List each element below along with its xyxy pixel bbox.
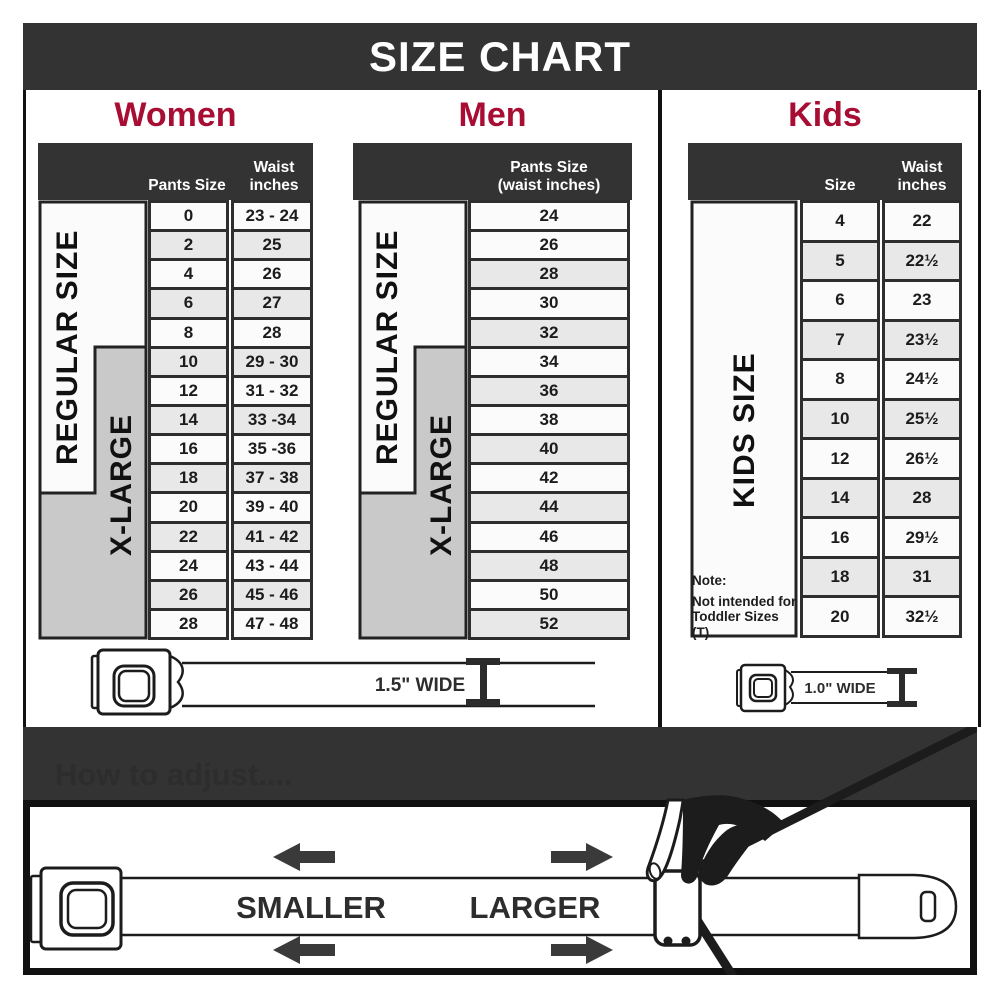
table-cell: 35 -36: [234, 433, 310, 462]
men-section-title: Men: [353, 94, 632, 136]
smaller-label: SMALLER: [236, 890, 386, 925]
size-chart-page: SIZE CHART Women Men Kids Pants Size Wai…: [0, 0, 1000, 1000]
table-cell: 24: [151, 550, 226, 579]
table-cell: 10: [803, 398, 877, 438]
kids-waist-header: Waist inches: [882, 159, 962, 194]
table-cell: 18: [151, 462, 226, 491]
table-cell: 26: [471, 229, 627, 258]
table-cell: 7: [803, 319, 877, 359]
table-cell: 39 - 40: [234, 491, 310, 520]
belt-adjuster-slider: [655, 871, 700, 946]
table-cell: 29½: [885, 516, 959, 556]
table-cell: 47 - 48: [234, 608, 310, 637]
table-cell: 50: [471, 579, 627, 608]
table-cell: 28: [471, 258, 627, 287]
table-cell: 31: [885, 556, 959, 596]
women-waist-header: Waist inches: [232, 159, 316, 194]
table-cell: 14: [151, 404, 226, 433]
note-title: Note:: [692, 573, 798, 589]
table-cell: 28: [151, 608, 226, 637]
width-marker-icon: [466, 658, 500, 706]
men-regular-size-label: REGULAR SIZE: [368, 202, 408, 492]
table-cell: 10: [151, 346, 226, 375]
table-cell: 20: [803, 595, 877, 635]
table-cell: 32: [471, 317, 627, 346]
table-cell: 4: [803, 203, 877, 240]
table-cell: 25: [234, 229, 310, 258]
women-pants-size-column: 0246810121416182022242628: [148, 200, 229, 640]
table-cell: 42: [471, 462, 627, 491]
table-cell: 37 - 38: [234, 462, 310, 491]
table-cell: 23 - 24: [234, 203, 310, 229]
table-cell: 43 - 44: [234, 550, 310, 579]
women-xlarge-label: X-LARGE: [102, 372, 142, 598]
how-to-adjust-section: How to adjust....: [23, 727, 977, 975]
men-table-header: Pants Size (waist inches): [353, 143, 632, 200]
table-cell: 12: [803, 437, 877, 477]
men-pants-size-column: 242628303234363840424446485052: [468, 200, 630, 640]
kids-size-header: Size: [800, 177, 880, 194]
table-cell: 44: [471, 491, 627, 520]
kids-waist-column: 2222½2323½24½25½26½2829½3132½: [882, 200, 962, 638]
note-line: Not intended for: [692, 594, 798, 610]
table-cell: 23½: [885, 319, 959, 359]
kids-note: Note: Not intended for Toddler Sizes (T): [692, 573, 798, 640]
adult-belt-illustration: 1.5" WIDE: [90, 646, 600, 720]
table-cell: 24½: [885, 358, 959, 398]
larger-label: LARGER: [470, 890, 601, 925]
table-cell: 45 - 46: [234, 579, 310, 608]
table-cell: 8: [803, 358, 877, 398]
table-cell: 22: [885, 203, 959, 240]
kids-size-column: 45678101214161820: [800, 200, 880, 638]
kids-section-title: Kids: [688, 94, 962, 136]
table-cell: 0: [151, 203, 226, 229]
page-title: SIZE CHART: [369, 33, 631, 81]
how-to-adjust-heading: How to adjust....: [55, 757, 293, 792]
table-cell: 26½: [885, 437, 959, 477]
table-cell: 12: [151, 375, 226, 404]
size-chart-banner: SIZE CHART: [23, 23, 977, 90]
note-line: Toddler Sizes (T): [692, 609, 798, 640]
men-pants-size-header: Pants Size (waist inches): [468, 159, 630, 194]
table-cell: 18: [803, 556, 877, 596]
women-pants-size-header: Pants Size: [144, 177, 230, 194]
table-cell: 33 -34: [234, 404, 310, 433]
table-cell: 8: [151, 317, 226, 346]
table-cell: 34: [471, 346, 627, 375]
table-cell: 38: [471, 404, 627, 433]
table-cell: 46: [471, 521, 627, 550]
kids-belt-illustration: 1.0" WIDE: [735, 650, 930, 714]
table-cell: 16: [803, 516, 877, 556]
table-cell: 6: [151, 287, 226, 316]
table-cell: 26: [151, 579, 226, 608]
table-cell: 2: [151, 229, 226, 258]
table-cell: 26: [234, 258, 310, 287]
table-cell: 6: [803, 279, 877, 319]
seatbelt-buckle-icon: [92, 650, 183, 714]
table-cell: 20: [151, 491, 226, 520]
men-xlarge-label: X-LARGE: [422, 372, 462, 598]
table-cell: 31 - 32: [234, 375, 310, 404]
table-cell: 27: [234, 287, 310, 316]
table-cell: 52: [471, 608, 627, 637]
table-cell: 25½: [885, 398, 959, 438]
women-regular-size-label: REGULAR SIZE: [48, 202, 88, 492]
table-cell: 28: [234, 317, 310, 346]
table-cell: 24: [471, 203, 627, 229]
kids-table-header: Size Waist inches: [688, 143, 962, 200]
adult-belt-width-label: 1.5" WIDE: [375, 675, 465, 696]
table-cell: 4: [151, 258, 226, 287]
kids-belt-width-label: 1.0" WIDE: [804, 680, 875, 697]
table-cell: 40: [471, 433, 627, 462]
seatbelt-buckle-icon: [31, 868, 121, 949]
width-marker-icon: [887, 668, 917, 707]
seatbelt-buckle-icon: [737, 665, 793, 711]
women-table-header: Pants Size Waist inches: [38, 143, 313, 200]
table-cell: 29 - 30: [234, 346, 310, 375]
table-cell: 14: [803, 477, 877, 517]
table-cell: 48: [471, 550, 627, 579]
belt-tip: [859, 875, 956, 938]
table-cell: 36: [471, 375, 627, 404]
table-cell: 32½: [885, 595, 959, 635]
table-cell: 16: [151, 433, 226, 462]
table-cell: 41 - 42: [234, 521, 310, 550]
women-section-title: Women: [38, 94, 313, 136]
table-cell: 5: [803, 240, 877, 280]
table-cell: 28: [885, 477, 959, 517]
table-cell: 30: [471, 287, 627, 316]
table-cell: 23: [885, 279, 959, 319]
table-cell: 22: [151, 521, 226, 550]
belt-tip-slot: [921, 892, 935, 921]
table-cell: 22½: [885, 240, 959, 280]
women-waist-column: 23 - 242526272829 - 3031 - 3233 -3435 -3…: [231, 200, 313, 640]
kids-size-label: KIDS SIZE: [725, 320, 765, 540]
